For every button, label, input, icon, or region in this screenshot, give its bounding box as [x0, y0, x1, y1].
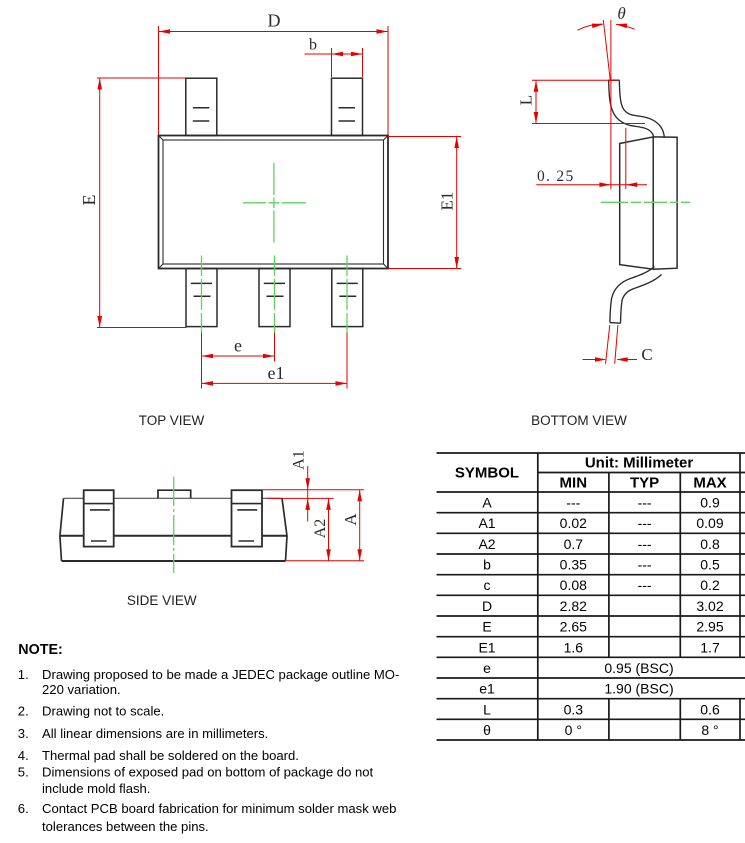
svg-text:0.6: 0.6 [700, 701, 720, 717]
svg-text:All linear dimensions are in m: All linear dimensions are in millimeters… [42, 726, 268, 741]
svg-text:0.8: 0.8 [700, 536, 720, 552]
svg-text:c: c [484, 577, 491, 593]
svg-text:A2: A2 [312, 519, 329, 539]
svg-text:A1: A1 [290, 450, 307, 470]
svg-text:MAX: MAX [693, 475, 726, 492]
svg-text:Thermal pad shall be soldered: Thermal pad shall be soldered on the boa… [42, 748, 299, 763]
svg-text:3.: 3. [18, 726, 29, 741]
svg-text:TYP: TYP [630, 475, 659, 492]
svg-text:e: e [234, 336, 242, 356]
svg-text:Dimensions of exposed pad on b: Dimensions of exposed pad on bottom of p… [42, 764, 374, 779]
svg-text:3.02: 3.02 [696, 598, 723, 614]
svg-text:E: E [79, 195, 99, 206]
svg-text:0. 25: 0. 25 [537, 168, 575, 185]
svg-text:MIN: MIN [560, 475, 588, 492]
svg-text:TOP VIEW: TOP VIEW [139, 413, 205, 428]
svg-text:Contact PCB board fabrication: Contact PCB board fabrication for minimu… [42, 801, 396, 816]
svg-text:5.: 5. [18, 764, 29, 779]
svg-text:1.90 (BSC): 1.90 (BSC) [604, 681, 673, 697]
svg-text:A1: A1 [478, 515, 495, 531]
svg-text:8 °: 8 ° [701, 722, 718, 738]
svg-text:L: L [483, 701, 491, 717]
svg-text:D: D [482, 598, 492, 614]
svg-text:0.08: 0.08 [560, 577, 587, 593]
svg-text:NOTE:: NOTE: [18, 642, 62, 658]
svg-text:L: L [517, 95, 536, 105]
svg-text:E1: E1 [438, 192, 457, 211]
svg-text:0.3: 0.3 [564, 701, 584, 717]
svg-text:---: --- [638, 536, 652, 552]
svg-text:e1: e1 [479, 681, 495, 697]
svg-text:2.95: 2.95 [696, 619, 723, 635]
svg-text:D: D [268, 11, 281, 31]
svg-text:6.: 6. [18, 801, 29, 816]
svg-text:E1: E1 [478, 639, 495, 655]
svg-text:Unit: Millimeter: Unit: Millimeter [585, 455, 694, 472]
svg-text:---: --- [638, 515, 652, 531]
svg-text:b: b [483, 557, 491, 573]
svg-text:A2: A2 [478, 536, 495, 552]
svg-text:BOTTOM VIEW: BOTTOM VIEW [531, 413, 627, 428]
svg-text:0.7: 0.7 [564, 536, 584, 552]
svg-text:0.2: 0.2 [700, 577, 720, 593]
svg-text:0.9: 0.9 [700, 495, 720, 511]
svg-text:e1: e1 [268, 363, 285, 383]
svg-text:---: --- [566, 495, 580, 511]
svg-text:220 variation.: 220 variation. [42, 682, 121, 697]
svg-text:0.95 (BSC): 0.95 (BSC) [604, 660, 673, 676]
svg-text:tolerances between the pins.: tolerances between the pins. [42, 819, 209, 834]
svg-text:1.6: 1.6 [564, 639, 584, 655]
svg-text:include mold flash.: include mold flash. [42, 781, 150, 796]
svg-text:SIDE VIEW: SIDE VIEW [127, 593, 197, 608]
svg-text:0.09: 0.09 [696, 515, 723, 531]
svg-text:---: --- [638, 495, 652, 511]
svg-text:2.82: 2.82 [560, 598, 587, 614]
svg-text:Drawing proposed to be made a: Drawing proposed to be made a JEDEC pack… [42, 667, 399, 682]
svg-text:θ: θ [617, 4, 625, 23]
svg-text:SYMBOL: SYMBOL [455, 465, 519, 482]
svg-text:1.7: 1.7 [700, 639, 720, 655]
svg-text:---: --- [638, 557, 652, 573]
svg-text:Drawing not to scale.: Drawing not to scale. [42, 703, 164, 718]
svg-text:0.35: 0.35 [560, 557, 587, 573]
svg-text:2.: 2. [18, 703, 29, 718]
svg-text:---: --- [638, 577, 652, 593]
svg-text:A: A [341, 513, 360, 526]
svg-text:e: e [483, 660, 491, 676]
svg-text:1.: 1. [18, 667, 29, 682]
svg-text:A: A [482, 495, 492, 511]
svg-text:E: E [482, 619, 491, 635]
svg-text:θ: θ [483, 722, 491, 738]
svg-text:0 °: 0 ° [565, 722, 582, 738]
svg-text:C: C [641, 345, 652, 364]
svg-text:b: b [309, 37, 317, 54]
svg-text:2.65: 2.65 [560, 619, 587, 635]
svg-text:4.: 4. [18, 748, 29, 763]
svg-text:0.5: 0.5 [700, 557, 720, 573]
svg-text:0.02: 0.02 [560, 515, 587, 531]
